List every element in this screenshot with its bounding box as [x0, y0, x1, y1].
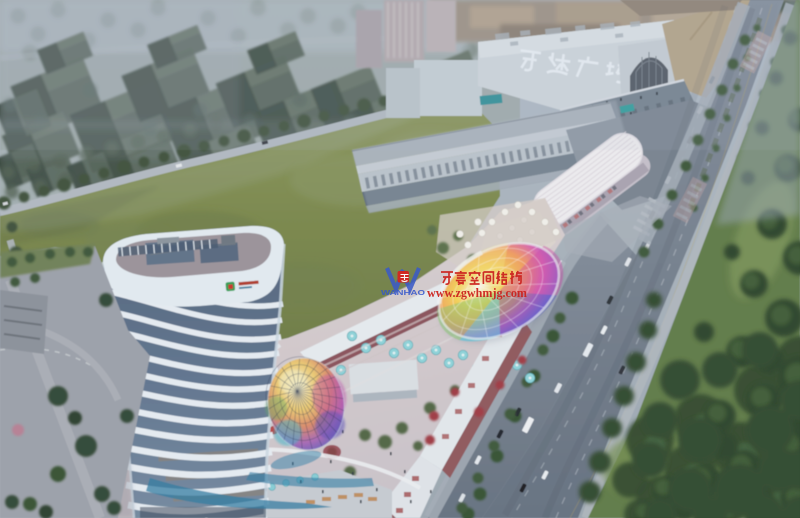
svg-text:www.zgwhmjg.com: www.zgwhmjg.com	[427, 285, 527, 300]
svg-text:WANHAO: WANHAO	[381, 288, 425, 297]
